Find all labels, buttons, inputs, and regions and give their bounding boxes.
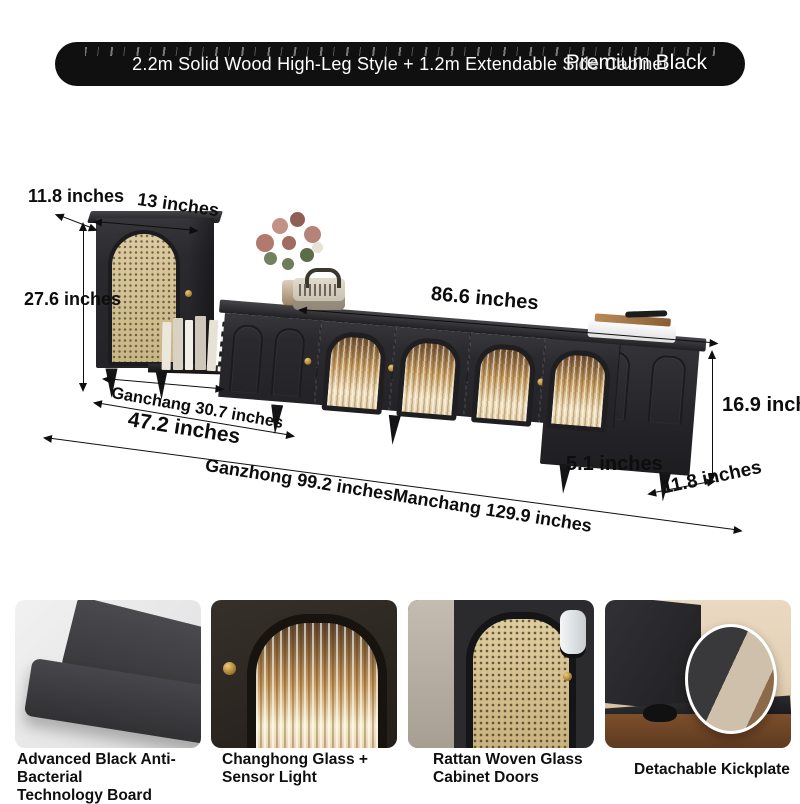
dim-label-leg-height: 5.1 inches: [566, 453, 663, 476]
dim-label-side-height: 27.6 inches: [24, 289, 121, 310]
feature-caption-kickplate: Detachable Kickplate: [634, 761, 800, 779]
feature-caption-glass: Changhong Glass +Sensor Light: [222, 751, 412, 787]
product-image: 2.2m Solid Wood High-Leg Style + 1.2m Ex…: [0, 0, 800, 800]
glass-door: [464, 333, 545, 423]
glass-door: [390, 327, 471, 417]
banner: 2.2m Solid Wood High-Leg Style + 1.2m Ex…: [55, 42, 745, 86]
feature-photo-glass-door: [211, 600, 397, 748]
feature-photo-rattan-door: [408, 600, 594, 748]
glass-door: [315, 321, 396, 411]
door-knob: [185, 290, 192, 297]
dim-label-full-span: Ganzhong 99.2 inchesManchang 129.9 inche…: [204, 455, 594, 537]
door-knob: [223, 662, 236, 675]
feature-photo-board: [15, 600, 201, 748]
door-knob: [563, 672, 572, 681]
cabinet-foot: [643, 704, 677, 722]
zoom-inset-circle: [685, 624, 777, 734]
feature-photo-kickplate: [605, 600, 791, 748]
dim-label-side-depth: 11.8 inches: [28, 186, 124, 207]
banner-variant-label: Premium Black: [566, 51, 707, 75]
feature-caption-board: Advanced Black Anti-BacterialTechnology …: [17, 751, 207, 804]
glass-door: [539, 339, 620, 429]
white-vase: [560, 610, 586, 654]
dim-label-right-height: 16.9 inches: [722, 394, 800, 417]
dim-label-tv-length: 86.6 inches: [430, 283, 539, 315]
solid-door-section: [218, 313, 321, 405]
height-arrow-right: [712, 352, 713, 480]
feature-caption-rattan: Rattan Woven GlassCabinet Doors: [433, 751, 623, 787]
cabinet-leg: [385, 412, 403, 445]
